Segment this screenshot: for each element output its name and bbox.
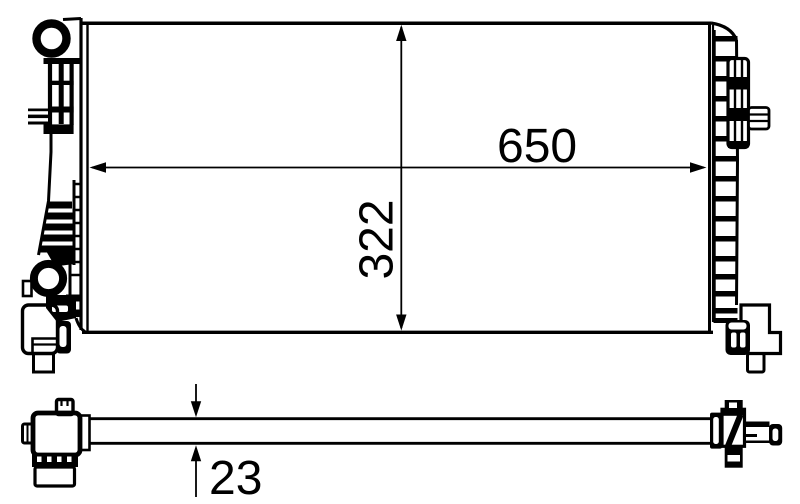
svg-text:322: 322: [351, 199, 404, 279]
svg-text:23: 23: [209, 452, 262, 504]
svg-text:650: 650: [497, 120, 577, 173]
